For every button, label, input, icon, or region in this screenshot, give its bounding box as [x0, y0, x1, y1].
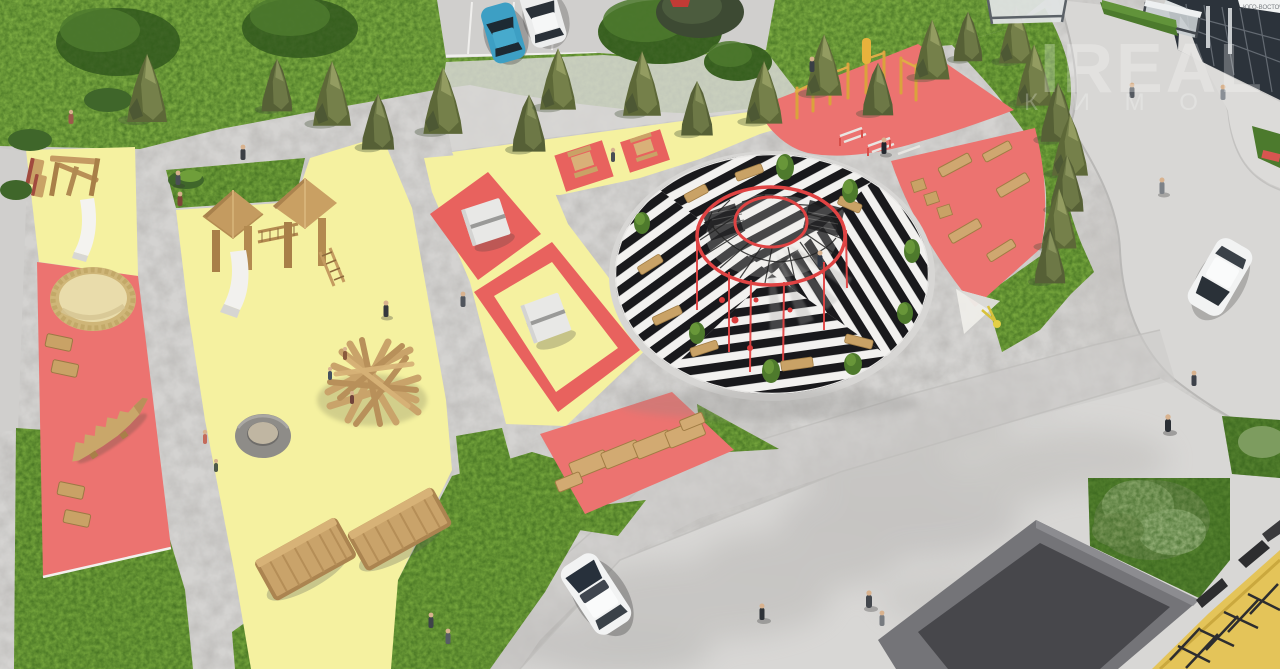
svg-text:К И М О: К И М О: [1024, 89, 1212, 116]
svg-text:ЮГО-ВОСТОЧНЫЙ: ЮГО-ВОСТОЧНЫЙ: [1243, 3, 1280, 11]
